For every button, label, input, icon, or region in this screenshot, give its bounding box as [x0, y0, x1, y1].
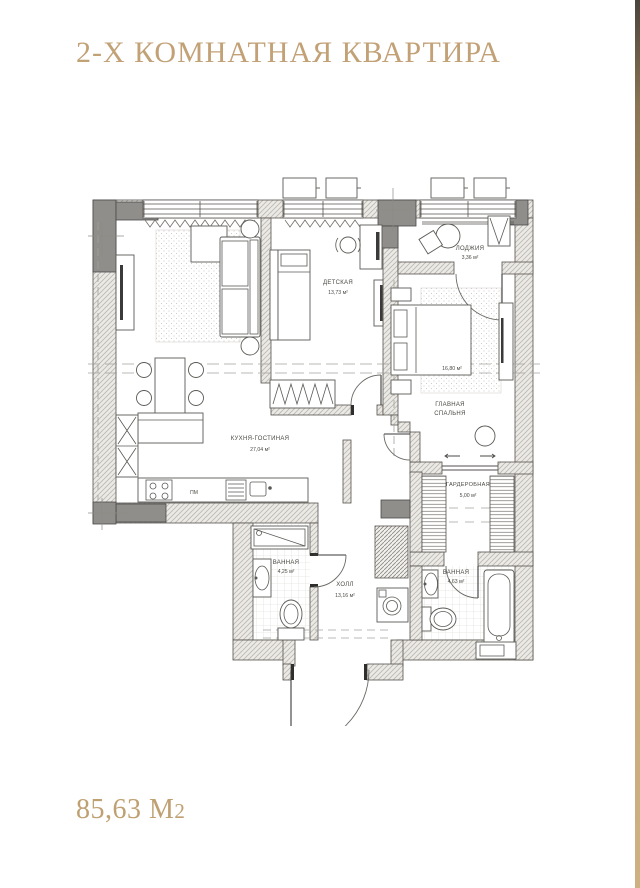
- room-area-bath-left: 4,25 м²: [278, 569, 295, 575]
- pouf: [241, 220, 259, 238]
- radiator-zigzag-kids: [285, 220, 360, 227]
- page: 2-Х КОМНАТНАЯ КВАРТИРА: [0, 0, 640, 888]
- kids-tv: [374, 280, 383, 326]
- room-label-kids: ДЕТСКАЯ: [323, 280, 353, 286]
- kids-bed: [270, 250, 310, 340]
- sink: [253, 559, 271, 597]
- kitchen-counter: [138, 478, 308, 502]
- room-label-bedroom-2: СПАЛЬНЯ: [434, 411, 465, 417]
- washer-niche: [476, 642, 516, 659]
- washing-machine: [377, 588, 408, 622]
- toilet: [422, 607, 456, 631]
- room-area-loggia: 3,36 м²: [462, 255, 479, 261]
- total-area: 85,63 М2: [76, 794, 185, 826]
- furniture-kids: [270, 225, 383, 408]
- nightstand: [391, 380, 411, 394]
- bedroom-door: [384, 434, 410, 460]
- kitchen-island: [138, 413, 203, 443]
- room-label-hall: ХОЛЛ: [336, 582, 353, 588]
- dining-set: [137, 358, 204, 415]
- kids-wardrobe: [270, 380, 335, 408]
- room-area-kids: 13,73 м²: [328, 290, 348, 296]
- loggia-storage: [488, 216, 510, 246]
- page-edge-decoration: [635, 0, 640, 888]
- wardrobe-sliding-door: [442, 454, 498, 470]
- total-area-value: 85,63 М: [76, 794, 174, 825]
- room-label-kitchen-living: КУХНЯ-ГОСТИНАЯ: [231, 436, 290, 442]
- hall-fixtures: [375, 526, 408, 622]
- tv-cabinet: [116, 255, 134, 330]
- dishwasher-label: ПМ: [190, 490, 198, 496]
- nightstand: [391, 288, 411, 301]
- bathtub: [484, 570, 514, 644]
- sofa: [220, 237, 260, 337]
- monitor: [376, 232, 380, 260]
- sink: [422, 570, 438, 598]
- floor-plan: ДЕТСКАЯ 13,73 м² ЛОДЖИЯ 3,36 м² 16,80 м²…: [88, 170, 540, 726]
- room-label-bedroom-1: ГЛАВНАЯ: [435, 402, 465, 408]
- exterior-units: [283, 178, 510, 198]
- toilet: [278, 600, 304, 640]
- bed: [391, 305, 471, 375]
- pouf: [241, 337, 259, 355]
- bedroom-tv: [499, 303, 513, 380]
- room-area-bedroom: 16,80 м²: [442, 366, 462, 372]
- tv-screen: [120, 265, 123, 320]
- total-area-exponent: 2: [174, 799, 185, 823]
- room-area-wardrobe: 5,00 м²: [460, 493, 477, 499]
- living-window: [143, 200, 258, 218]
- room-label-loggia: ЛОДЖИЯ: [456, 246, 485, 252]
- bedroom-chair: [475, 426, 495, 446]
- shower: [251, 526, 308, 549]
- room-area-bath-right: 4,63 м²: [448, 579, 465, 585]
- page-title: 2-Х КОМНАТНАЯ КВАРТИРА: [76, 36, 596, 70]
- room-area-hall: 13,16 м²: [335, 593, 355, 599]
- room-label-wardrobe: ГАРДЕРОБНАЯ: [446, 482, 490, 488]
- room-label-bath-right: ВАННАЯ: [443, 570, 470, 576]
- clothes-rack: [422, 476, 446, 552]
- hall-closet: [375, 526, 408, 578]
- clothes-rack: [490, 476, 514, 552]
- desk-chair: [340, 237, 356, 253]
- entrance-door: [291, 670, 369, 726]
- room-label-bath-left: ВАННАЯ: [273, 560, 300, 566]
- kids-window: [283, 200, 363, 218]
- fridge-column: [116, 415, 138, 477]
- kids-desk: [336, 225, 382, 269]
- kids-door: [351, 375, 381, 405]
- room-area-kitchen-living: 27,04 м²: [250, 447, 270, 453]
- windows: [143, 200, 516, 227]
